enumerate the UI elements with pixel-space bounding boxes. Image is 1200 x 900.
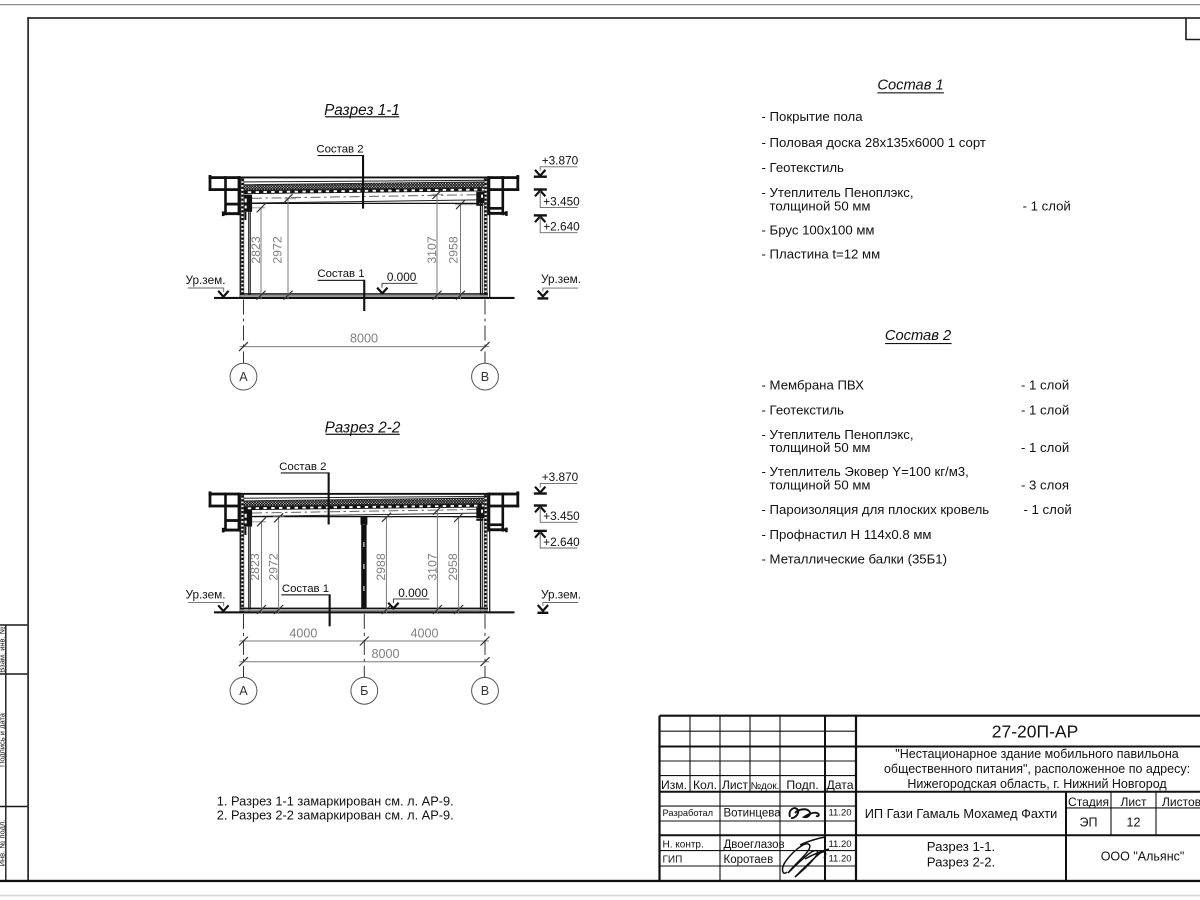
svg-text:+3.870: +3.870 — [542, 470, 579, 484]
svg-text:- Пластина t=12 мм: - Пластина t=12 мм — [762, 247, 881, 262]
svg-text:Ур.зем.: Ур.зем. — [541, 272, 581, 286]
svg-text:- Половая доска 28х135х6000 1: - Половая доска 28х135х6000 1 сорт — [762, 135, 986, 150]
svg-text:4000: 4000 — [410, 626, 438, 640]
svg-text:Взам. инв. №: Взам. инв. № — [0, 626, 7, 672]
svg-text:+3.450: +3.450 — [543, 509, 580, 523]
svg-text:27-20П-АР: 27-20П-АР — [992, 722, 1079, 742]
svg-text:А: А — [239, 684, 248, 698]
svg-text:А: А — [239, 370, 248, 384]
svg-text:ИП Гази Гамаль Мохамед Фахти: ИП Гази Гамаль Мохамед Фахти — [865, 806, 1058, 821]
svg-text:- Геотекстиль: - Геотекстиль — [762, 402, 845, 417]
svg-text:+3.450: +3.450 — [543, 194, 580, 208]
svg-text:+2.640: +2.640 — [543, 535, 580, 549]
svg-text:- Геотекстиль: - Геотекстиль — [762, 160, 845, 175]
svg-text:1. Разрез 1-1 замаркирован см.: 1. Разрез 1-1 замаркирован см. л. АР-9. — [217, 793, 454, 808]
svg-text:Состав 1: Состав 1 — [877, 78, 943, 94]
svg-text:Состав 2: Состав 2 — [279, 461, 326, 473]
svg-text:+3.870: +3.870 — [542, 154, 579, 168]
svg-text:ЭП: ЭП — [1080, 815, 1098, 829]
svg-text:2972: 2972 — [267, 553, 281, 581]
svg-text:толщиной 50 мм: толщиной 50 мм — [770, 440, 871, 455]
svg-text:В: В — [481, 370, 489, 384]
svg-text:- Профнастил Н 114х0.8 мм: - Профнастил Н 114х0.8 мм — [762, 527, 932, 542]
svg-text:+2.640: +2.640 — [543, 220, 580, 234]
svg-text:Нижегородская область, г. Нижн: Нижегородская область, г. Нижний Новгоро… — [907, 777, 1167, 791]
svg-text:Состав 2: Состав 2 — [316, 144, 363, 156]
svg-text:№док.: №док. — [751, 781, 780, 792]
svg-text:0.000: 0.000 — [398, 586, 428, 600]
svg-text:толщиной 50 мм: толщиной 50 мм — [770, 198, 871, 213]
svg-text:2823: 2823 — [249, 236, 263, 264]
svg-text:Подпись и дата: Подпись и дата — [0, 712, 7, 767]
svg-text:Инв. № подл.: Инв. № подл. — [0, 820, 7, 867]
svg-text:Ур.зем.: Ур.зем. — [185, 273, 225, 287]
svg-text:Разрез 1-1.: Разрез 1-1. — [927, 839, 995, 854]
svg-text:общественного питания", распол: общественного питания", расположенное по… — [884, 762, 1190, 776]
svg-text:Кол.: Кол. — [693, 778, 717, 792]
svg-text:ГИП: ГИП — [663, 855, 683, 866]
svg-text:Двоеглазов: Двоеглазов — [724, 839, 785, 851]
svg-text:ООО "Альянс": ООО "Альянс" — [1101, 850, 1185, 864]
svg-text:- Металлические балки (35Б1): - Металлические балки (35Б1) — [762, 552, 948, 567]
svg-text:2958: 2958 — [447, 236, 461, 264]
svg-text:толщиной 50 мм: толщиной 50 мм — [770, 477, 871, 492]
svg-text:В: В — [481, 684, 489, 698]
svg-text:2972: 2972 — [271, 236, 285, 264]
svg-text:Б: Б — [360, 684, 368, 698]
svg-text:Изм.: Изм. — [661, 778, 687, 792]
svg-text:11.20: 11.20 — [828, 839, 851, 850]
svg-text:2958: 2958 — [446, 553, 460, 581]
svg-text:- Мембрана ПВХ: - Мембрана ПВХ — [762, 377, 865, 392]
svg-text:- 1 слой: - 1 слой — [1021, 377, 1069, 392]
svg-text:Лист: Лист — [1120, 795, 1147, 809]
svg-text:Ур.зем.: Ур.зем. — [185, 588, 225, 602]
svg-text:3107: 3107 — [425, 553, 439, 581]
svg-text:"Нестационарное здание мобильн: "Нестационарное здание мобильного павиль… — [895, 747, 1178, 761]
svg-text:Вотинцева: Вотинцева — [724, 807, 782, 819]
svg-text:Коротаев: Коротаев — [724, 854, 774, 866]
svg-text:Состав 1: Состав 1 — [317, 268, 364, 280]
svg-text:8000: 8000 — [371, 647, 399, 661]
svg-text:- 1 слой: - 1 слой — [1024, 502, 1072, 517]
svg-text:- 1 слой: - 1 слой — [1021, 440, 1069, 455]
svg-text:4000: 4000 — [289, 626, 317, 640]
svg-text:Н. контр.: Н. контр. — [663, 839, 704, 850]
svg-text:Подп.: Подп. — [786, 778, 818, 792]
svg-text:- Покрытие пола: - Покрытие пола — [762, 109, 864, 124]
svg-text:12: 12 — [1127, 815, 1141, 829]
svg-text:11.20: 11.20 — [828, 808, 851, 819]
svg-text:- Брус 100х100 мм: - Брус 100х100 мм — [762, 222, 875, 237]
svg-text:Дата: Дата — [827, 778, 854, 792]
svg-text:2988: 2988 — [374, 553, 388, 581]
svg-text:Состав 1: Состав 1 — [282, 583, 329, 595]
svg-text:Разработал: Разработал — [663, 808, 714, 818]
svg-text:8000: 8000 — [350, 332, 378, 346]
svg-text:- 1 слой: - 1 слой — [1023, 198, 1071, 213]
svg-text:- Пароизоляция для плоских кро: - Пароизоляция для плоских кровель — [762, 502, 990, 517]
svg-text:0.000: 0.000 — [387, 270, 417, 284]
svg-text:Стадия: Стадия — [1068, 795, 1109, 809]
svg-text:Разрез 2-2.: Разрез 2-2. — [927, 855, 995, 870]
svg-text:2. Разрез 2-2 замаркирован см.: 2. Разрез 2-2 замаркирован см. л. АР-9. — [217, 807, 454, 822]
svg-text:Лист: Лист — [722, 778, 749, 792]
svg-text:3107: 3107 — [425, 236, 439, 264]
svg-text:Ур.зем.: Ур.зем. — [541, 587, 581, 601]
svg-text:2823: 2823 — [248, 553, 262, 581]
svg-text:- 1 слой: - 1 слой — [1021, 402, 1069, 417]
svg-text:Листов: Листов — [1162, 795, 1200, 809]
svg-text:11.20: 11.20 — [828, 853, 851, 864]
svg-text:- 3 слоя: - 3 слоя — [1021, 477, 1069, 492]
svg-text:Состав 2: Состав 2 — [885, 328, 951, 344]
